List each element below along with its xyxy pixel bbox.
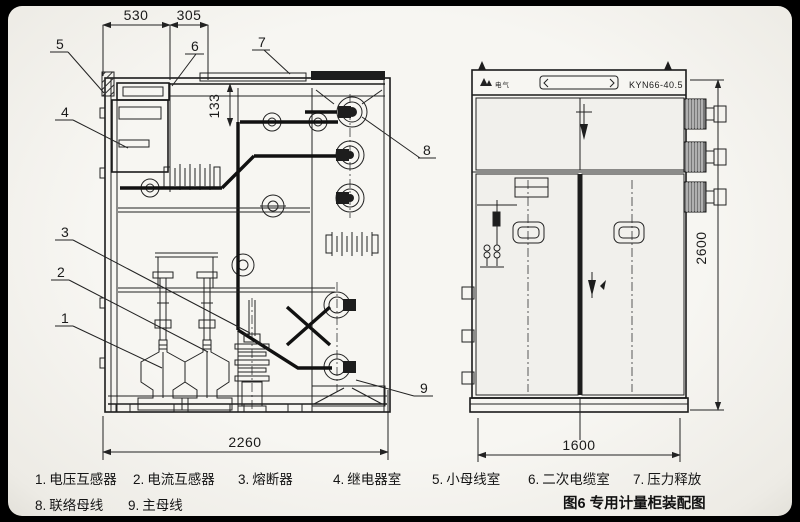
assembly-drawing: 电气 KYN66-40.5 — [0, 0, 800, 522]
busbar-clamps — [141, 113, 327, 276]
svg-text:1600: 1600 — [562, 437, 595, 453]
brand-text: 电气 — [495, 80, 510, 89]
small-busbar-compartment — [117, 83, 169, 100]
tie-bus-bushings — [336, 97, 367, 212]
front-view: 电气 KYN66-40.5 — [462, 61, 726, 412]
legend-item-5: 5.小母线室 — [432, 468, 500, 488]
svg-text:7: 7 — [258, 34, 266, 50]
brand-logo-icon — [480, 78, 492, 86]
figure-caption: 图6 专用计量柜装配图 — [563, 492, 706, 513]
side-section-view — [100, 71, 390, 412]
dimension-133: 133 — [206, 84, 230, 126]
svg-text:6: 6 — [191, 38, 199, 54]
drawing-scan: 电气 KYN66-40.5 — [0, 0, 800, 522]
legend-item-6: 6.二次电缆室 — [528, 468, 610, 488]
dimension-2260: 2260 — [103, 390, 388, 460]
svg-text:3: 3 — [61, 224, 69, 240]
transformer-stems — [153, 272, 217, 340]
svg-text:2260: 2260 — [228, 434, 261, 450]
relay-compartment — [112, 100, 168, 172]
legend-item-7: 7.压力释放 — [633, 468, 701, 488]
voltage-transformer — [138, 340, 188, 410]
pressure-relief-plates — [200, 71, 385, 81]
busbars — [120, 112, 338, 368]
side-bushings — [684, 99, 726, 212]
dimension-1600: 1600 — [478, 398, 680, 462]
bellows-insulator-right — [326, 232, 378, 256]
svg-text:2: 2 — [57, 264, 65, 280]
center-mullion — [578, 174, 582, 395]
svg-text:9: 9 — [420, 380, 428, 396]
svg-text:4: 4 — [61, 104, 69, 120]
current-transformer — [182, 340, 232, 410]
legend-item-2: 2.电流互感器 — [133, 468, 215, 488]
right-door — [582, 174, 684, 395]
top-recessed-slot — [540, 76, 618, 89]
svg-text:8: 8 — [423, 142, 431, 158]
legend-item-3: 3.熔断器 — [238, 468, 293, 488]
legend-item-4: 4.继电器室 — [333, 468, 401, 488]
left-door — [476, 174, 578, 395]
plinth — [470, 398, 688, 412]
bellows-insulator-left — [164, 164, 220, 190]
dimension-305: 305 — [170, 7, 208, 80]
svg-text:2600: 2600 — [693, 231, 709, 264]
svg-text:1: 1 — [61, 310, 69, 326]
cabinet-base — [108, 386, 387, 412]
lifting-lugs — [478, 61, 672, 70]
model-label: KYN66-40.5 — [629, 80, 683, 90]
dimension-530: 530 — [103, 7, 170, 80]
svg-text:305: 305 — [177, 7, 202, 23]
svg-text:530: 530 — [124, 7, 149, 23]
svg-text:5: 5 — [56, 36, 64, 52]
legend-item-8: 8.联络母线 — [35, 494, 103, 514]
svg-text:133: 133 — [206, 94, 222, 119]
legend-item-9: 9.主母线 — [128, 494, 183, 514]
legend-item-1: 1.电压互感器 — [35, 468, 117, 488]
mounting-rails — [118, 208, 335, 292]
